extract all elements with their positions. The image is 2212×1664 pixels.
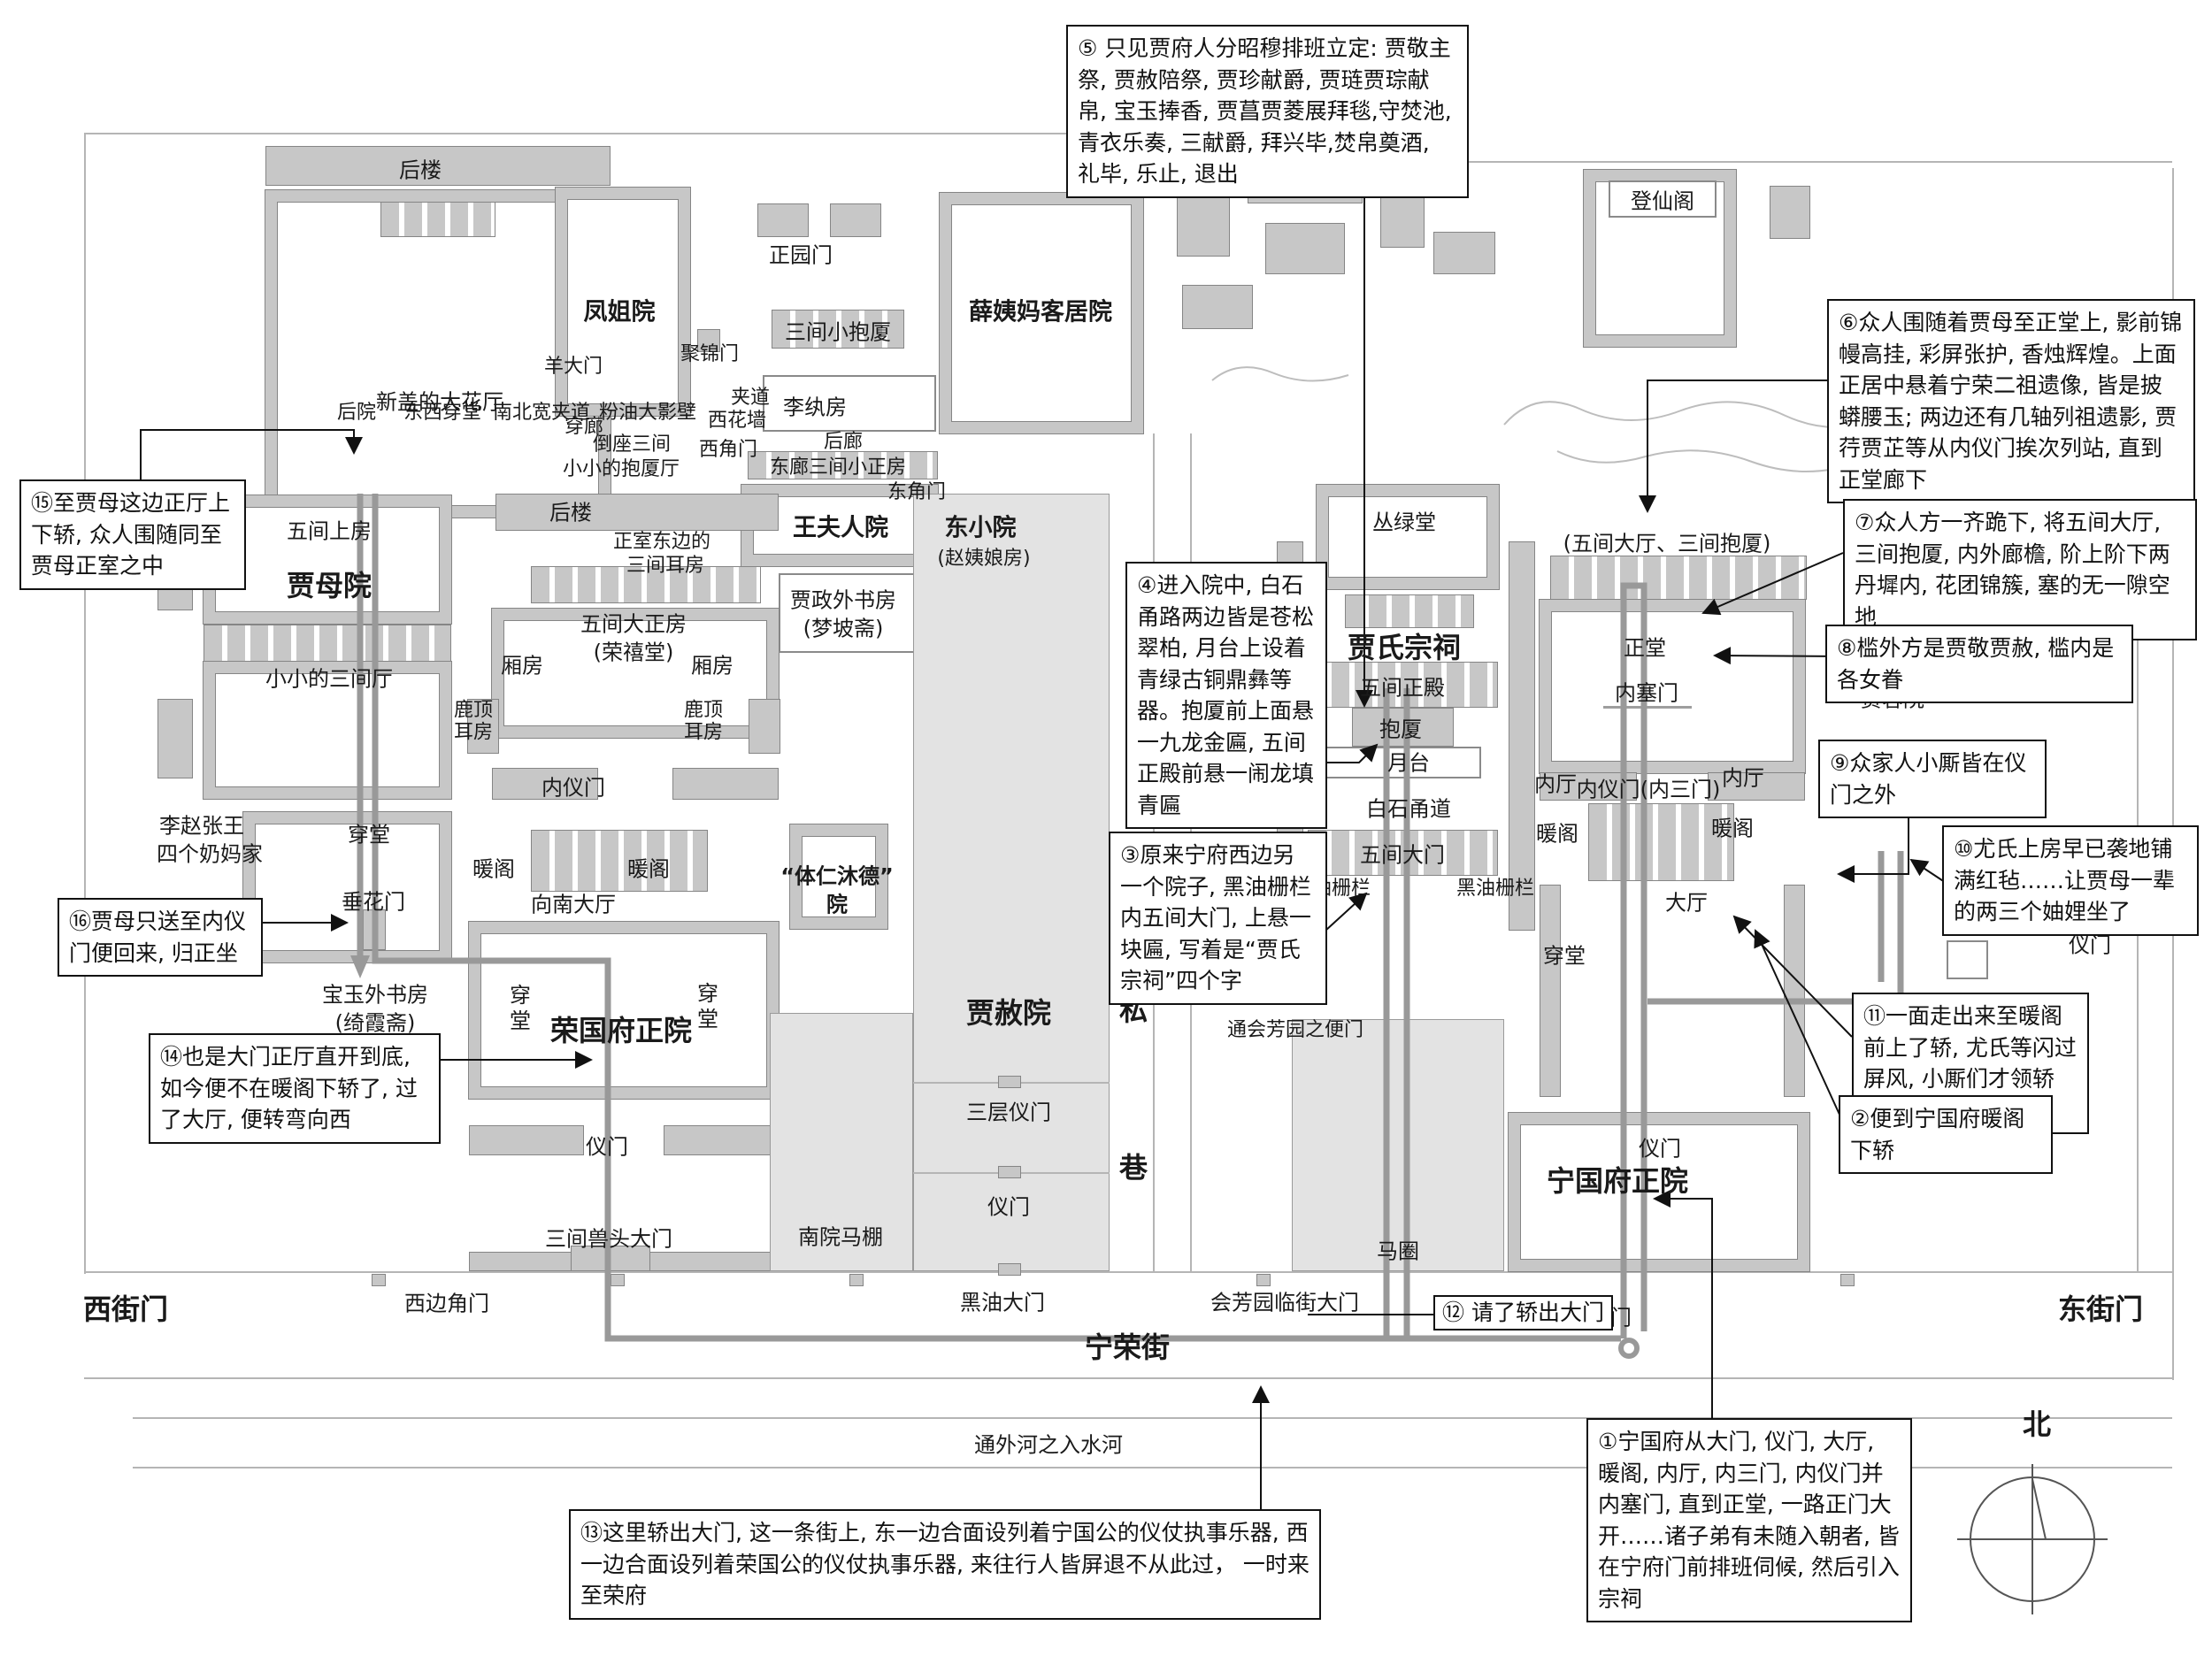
label-baishiyongdao: 白石甬道 — [1366, 792, 1451, 823]
label-heiyoudamen: 黑油大门 — [960, 1285, 1045, 1316]
label-neiting-e: 内厅 — [1722, 761, 1764, 792]
note-9: ⑨众家人小厮皆在仪门之外 — [1818, 740, 2047, 818]
garden-hall-porch — [380, 202, 495, 237]
label-wujiandazhengfang: 五间大正房 — [580, 607, 687, 638]
label-xiaosanjianting: 小小的三间厅 — [265, 662, 393, 693]
street-top-line — [84, 1271, 2172, 1273]
label-dongxiaoyuan: 东小院 — [945, 509, 1017, 543]
label-wujiandamen: 五间大门 — [1360, 838, 1445, 869]
label-luding-w: 鹿顶耳房 — [448, 700, 499, 745]
label-nuange-e1: 暖阁 — [1536, 817, 1578, 847]
street-door-tick — [372, 1274, 386, 1286]
label-houlou-rongxi: 后楼 — [549, 495, 592, 526]
label-xueyima: 薛姨妈客居院 — [969, 293, 1112, 327]
jiashe-gate-tick-2 — [998, 1166, 1021, 1178]
label-zhengtang: 正堂 — [1624, 631, 1666, 662]
label-shoutoudamen: 三间兽头大门 — [545, 1222, 672, 1253]
note-15: ⑮至贾母这边正厅上下轿, 众人围随同至贾母正室之中 — [19, 479, 246, 590]
label-jiasheyuan: 贾赦院 — [966, 991, 1051, 1031]
label-neiyimen-ning: 内仪门(内三门) — [1577, 772, 1721, 803]
label-fenyouyingbi: 粉油大影壁 — [599, 396, 696, 425]
temple-north-strip — [1345, 594, 1474, 628]
street-door-tick — [611, 1274, 625, 1286]
north-misc-block — [1265, 223, 1345, 274]
luding-east-block — [749, 699, 780, 754]
label-xijiaomen: 西角门 — [699, 433, 757, 462]
label-north: 北 — [2023, 1402, 2051, 1443]
label-jiamuyuan: 贾母院 — [287, 564, 372, 604]
rong-yimen-wall-e — [664, 1125, 779, 1155]
ning-hall-strip — [1550, 556, 1807, 600]
label-chuantang-rl: 穿堂 — [508, 983, 533, 1034]
label-yimen-ning: 仪门 — [1639, 1131, 1681, 1162]
label-zhaoyiniang: (赵姨娘房) — [937, 542, 1030, 571]
label-wujiandating: (五间大厅、三间抱厦) — [1563, 526, 1771, 557]
label-chuantang-jm: 穿堂 — [348, 817, 390, 848]
jiamu-mid-strip — [204, 625, 451, 662]
jiamu-west-wing-2 — [157, 699, 193, 778]
jiashe-light-block — [913, 494, 1110, 1271]
label-xiangnandating: 向南大厅 — [531, 887, 616, 918]
note-6: ⑥众人围随着贾母至正堂上, 影前锦幔高挂, 彩屏张护, 香烛辉煌。上面正居中悬着… — [1827, 299, 2195, 503]
note-13: ⑬这里轿出大门, 这一条街上, 东一边合面设列着宁国公的仪仗执事乐器, 西一边合… — [569, 1509, 1321, 1620]
neiyimen-wall-east — [672, 768, 779, 800]
label-wangfurenyuan: 王夫人院 — [793, 509, 888, 543]
label-chuantang-ning: 穿堂 — [1543, 939, 1586, 970]
label-jiashizongci: 贾氏宗祠 — [1348, 625, 1461, 666]
garden-gate-block-east — [830, 203, 881, 237]
north-boundary-west — [84, 133, 1144, 134]
label-huifangbianmen: 通会芳园之便门 — [1227, 1014, 1363, 1042]
label-rongguozhengyuan: 荣国府正院 — [550, 1008, 692, 1049]
label-tirenmude: “体仁沐德” — [780, 859, 894, 890]
street-door-tick — [1840, 1274, 1855, 1286]
label-sanjianerfang: 三间耳房 — [626, 549, 704, 578]
label-dongxichuantang: 东西穿堂 — [403, 396, 481, 425]
note-4: ④进入院中, 白石甬路两边皆是苍松翠柏, 月台上设着青绿古铜鼎彝等器。抱厦前上面… — [1125, 562, 1327, 829]
label-sancengyimen: 三层仪门 — [966, 1095, 1051, 1126]
label-qixiazhai: (绮霞斋) — [335, 1006, 416, 1037]
label-sanjianxiaobaosha: 三间小抱厦 — [785, 315, 891, 346]
label-waihe: 通外河之入水河 — [974, 1428, 1123, 1459]
label-yimen-jiashe: 仪门 — [987, 1190, 1030, 1221]
label-lizhaozhangwang: 李赵张王 — [159, 809, 244, 840]
note-12: ⑫ 请了轿出大门 — [1433, 1295, 1613, 1330]
label-maquan: 马圈 — [1377, 1234, 1419, 1265]
label-houlang: 后廊 — [824, 426, 863, 454]
label-baoyushufang: 宝玉外书房 — [322, 978, 428, 1008]
small-side-room — [1947, 940, 1988, 979]
label-donglangsanjian: 东廊三间小正房 — [770, 451, 906, 479]
label-wujianzhengdian: 五间正殿 — [1360, 671, 1445, 702]
note-1: ①宁国府从大门, 仪门, 大厅, 暖阁, 内厅, 内三门, 内仪门并内塞门, 直… — [1586, 1418, 1912, 1622]
label-chuihuamen: 垂花门 — [342, 885, 405, 916]
label-yimen-rong: 仪门 — [586, 1130, 628, 1161]
north-misc-block — [1770, 186, 1810, 239]
label-xijiemen: 西街门 — [83, 1287, 168, 1328]
label-tirenmude-yuan: 院 — [826, 887, 848, 918]
label-xibianjiaomen: 西边角门 — [404, 1286, 489, 1317]
conglv-hall-court — [1317, 485, 1499, 589]
jiashe-gate-tick-3 — [998, 1263, 1021, 1276]
label-nuange-w1: 暖阁 — [472, 852, 515, 883]
label-neisaimen: 内塞门 — [1615, 676, 1678, 707]
label-nuange-e2: 暖阁 — [1711, 811, 1754, 842]
note-14: ⑭也是大门正厅直开到底, 如今便不在暖阁下轿了, 过了大厅, 便转弯向西 — [149, 1033, 441, 1144]
street-bottom-line — [84, 1377, 2172, 1379]
label-baosha: 抱厦 — [1379, 712, 1422, 743]
street-door-tick — [849, 1274, 864, 1286]
label-liwanfang: 李纨房 — [783, 390, 847, 421]
note-5: ⑤ 只见贾府人分昭穆排班立定: 贾敬主祭, 贾赦陪祭, 贾珍献爵, 贾琏贾琮献帛… — [1066, 25, 1469, 198]
label-jujinmen: 聚锦门 — [680, 338, 739, 366]
label-nuange-w2: 暖阁 — [627, 852, 670, 883]
label-neiyimen-w: 内仪门 — [541, 771, 605, 801]
label-heiyoushanlan-e: 黑油栅栏 — [1456, 872, 1534, 901]
label-ningrongjie: 宁荣街 — [1085, 1325, 1170, 1366]
label-yangdamen: 羊大门 — [544, 350, 603, 379]
note-7: ⑦众人方一齐跪下, 将五间大厅, 三间抱厦, 内外廊檐, 阶上阶下两丹墀内, 花… — [1843, 499, 2197, 640]
label-chuantang-rr: 穿堂 — [695, 981, 720, 1032]
compass-icon — [1957, 1464, 2108, 1614]
label-xihuaqiang: 西花墙 — [708, 404, 766, 433]
jiashe-gate-tick-1 — [998, 1076, 1021, 1088]
label-mengpozhai: (梦坡斋) — [803, 611, 884, 642]
note-8: ⑧槛外方是贾敬贾赦, 槛内是各女眷 — [1825, 625, 2133, 703]
ning-east-corridor — [1784, 885, 1805, 1097]
label-xiaobaoshating: 小小的抱厦厅 — [563, 453, 680, 481]
rong-yimen-wall-w — [469, 1125, 584, 1155]
label-yuetai: 月台 — [1387, 746, 1430, 777]
label-xiangfang-w: 厢房 — [501, 648, 543, 679]
north-misc-block — [1433, 232, 1495, 274]
north-misc-block — [1182, 285, 1253, 329]
label-sigenaimajia: 四个奶妈家 — [157, 837, 263, 868]
label-fengjieyuan: 凤姐院 — [584, 293, 656, 327]
label-jiazhengshufang: 贾政外书房 — [790, 583, 896, 614]
label-dongjiaomen: 东角门 — [887, 476, 946, 504]
label-huifangyuandamen: 会芳园临街大门 — [1210, 1285, 1359, 1316]
rockery-line — [1212, 367, 1348, 380]
label-rongxitang: (荣禧堂) — [594, 635, 674, 666]
note-2: ②便到宁国府暖阁下轿 — [1839, 1095, 2053, 1174]
label-nanyuanmapeng: 南院马棚 — [798, 1220, 883, 1251]
chuihua-gate-block — [363, 909, 386, 950]
note-16: ⑯贾母只送至内仪门便回来, 归正坐 — [58, 898, 263, 977]
label-dating: 大厅 — [1665, 886, 1708, 916]
label-nanbeijiadao: 南北宽夹道 — [493, 396, 590, 425]
label-ningguozhengyuan: 宁国府正院 — [1547, 1159, 1688, 1200]
nuange-strip-west — [531, 830, 708, 892]
label-dongjiemen: 东街门 — [2058, 1287, 2143, 1328]
label-xiangfang-e: 厢房 — [691, 648, 733, 679]
map-canvas: 后楼 新盖的大花厅 穿廊 凤姐院 羊大门 聚锦门 后院 东西穿堂 南北宽夹道 粉… — [0, 0, 2212, 1664]
note-3: ③原来宁府西边另一个院子, 黑油栅栏内五间大门, 上悬一块匾, 写着是“贾氏宗祠… — [1109, 832, 1327, 1005]
west-boundary-line — [84, 133, 86, 1274]
note-10: ⑩尤氏上房早已袭地铺满红毡……让贾母一辈的两三个妯娌坐了 — [1942, 825, 2199, 936]
garden-gate-block-west — [757, 203, 809, 237]
label-luding-e: 鹿顶耳房 — [678, 700, 729, 745]
label-wujianshangfang: 五间上房 — [287, 514, 372, 545]
ning-west-corridor — [1540, 885, 1561, 1097]
label-houyuan: 后院 — [337, 396, 376, 425]
label-neiting-w: 内厅 — [1534, 767, 1577, 798]
label-dengxiange: 登仙阁 — [1631, 184, 1694, 215]
route-terminus-circle — [1621, 1340, 1637, 1356]
label-xiang: 巷 — [1119, 1146, 1148, 1186]
label-conglvtang: 丛绿堂 — [1372, 505, 1436, 536]
label-zhengyuanmen: 正园门 — [769, 238, 833, 269]
label-houlou-n: 后楼 — [399, 153, 442, 184]
